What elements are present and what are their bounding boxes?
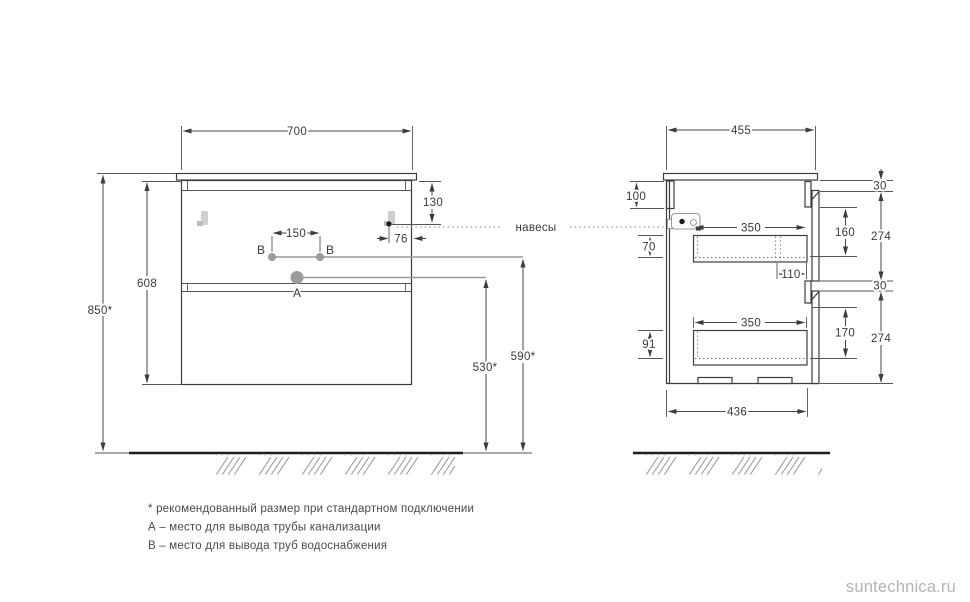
dim-drawer2-drop: 91 [638,331,663,359]
dim-drawer1-drop: 70 [638,236,663,258]
technical-drawing-vanity: 700 850* 608 130 76 [0,0,970,602]
dim-drawer1-front-height: 274 [871,193,891,280]
point-b-right-dot [316,253,324,261]
hangers-reference: навесы [397,222,670,234]
side-countertop [664,174,818,181]
dim-label-436: 436 [727,407,747,419]
wall-hanger-icon-left [197,211,208,226]
dim-label-170: 170 [835,328,855,340]
hanger-point-marker [386,221,391,226]
point-b-left-label: B [257,243,265,257]
dim-label-274-bottom: 274 [871,333,891,345]
dim-label-590: 590* [511,351,536,363]
dim-label-160: 160 [835,227,855,239]
side-back-rail [667,181,675,209]
dim-label-76: 76 [394,234,407,246]
side-foot-notch-2 [758,378,792,384]
dim-label-100: 100 [626,191,646,203]
dim-drain-height: 530* [473,280,498,451]
dim-drawer2-depth: 350 [694,317,807,330]
dim-back-rail: 100 [626,182,664,209]
dim-drawer2-front-height: 274 [871,293,891,383]
point-a-dot [291,271,304,284]
dim-front-width: 700 [182,126,413,170]
floor-right [633,453,830,475]
dim-label-30-top: 30 [873,181,886,193]
side-back-panel [667,180,670,384]
dim-label-30-mid: 30 [873,281,886,293]
dim-drawer1-offset: 110 [777,263,807,281]
point-b-left-dot [268,253,276,261]
point-b-right-label: B [326,243,334,257]
dim-gap-top: 30 [873,169,886,193]
dim-label-91: 91 [642,339,655,351]
side-view: 455 100 30 274 30 274 [626,125,893,475]
dim-bottom-depth: 436 [667,388,808,419]
dim-label-350-top: 350 [741,223,761,235]
dim-label-70: 70 [642,242,655,254]
front-countertop [177,174,417,181]
dim-depth: 455 [667,125,816,170]
dim-b-spacing: 150 [272,228,320,252]
side-mid-rail [805,281,811,303]
dim-label-850: 850* [88,305,113,317]
dim-mount-height: 850* [88,174,176,451]
dim-label-455: 455 [731,125,751,137]
dim-gap-mid: 30 [873,281,886,293]
drawing-svg: 700 850* 608 130 76 [0,0,970,602]
side-top-rail [805,182,811,208]
dim-label-110: 110 [781,269,800,281]
floor-hatching-left [203,456,455,475]
side-drawer1-front [812,191,819,282]
front-view: 700 850* 608 130 76 [88,126,536,475]
hangers-label: навесы [516,222,557,234]
dim-drawer1-depth: 350 [696,223,805,235]
dim-label-150: 150 [286,228,306,240]
footnotes: * рекомендованный размер при стандартном… [148,503,474,552]
point-a-label: A [293,286,301,300]
dim-hanger-top-offset: 130 [390,182,443,225]
dim-supply-height: 590* [511,260,536,451]
footnote-point-b: В – место для вывода труб водоснабжения [148,540,387,552]
dim-label-130: 130 [423,197,443,209]
dim-body-height: 608 [137,182,181,385]
footnote-recommended-size: * рекомендованный размер при стандартном… [148,503,474,515]
side-drawer2-front [812,291,819,384]
side-foot-notch-1 [698,378,732,384]
side-drawer1-box [694,236,808,263]
dim-label-608: 608 [137,278,157,290]
dim-label-274-top: 274 [871,231,891,243]
floor-left [95,453,532,475]
dim-label-530: 530* [473,362,498,374]
front-top-rail [182,181,412,191]
side-drawer2-box [694,331,808,366]
footnote-point-a: А – место для вывода трубы канализации [148,522,381,534]
dim-label-350-bottom: 350 [741,318,761,330]
floor-hatching-right [640,456,822,475]
watermark: suntechnica.ru [846,578,956,596]
dim-label-700: 700 [287,126,307,138]
dim-hanger-side-offset: 76 [377,227,426,246]
